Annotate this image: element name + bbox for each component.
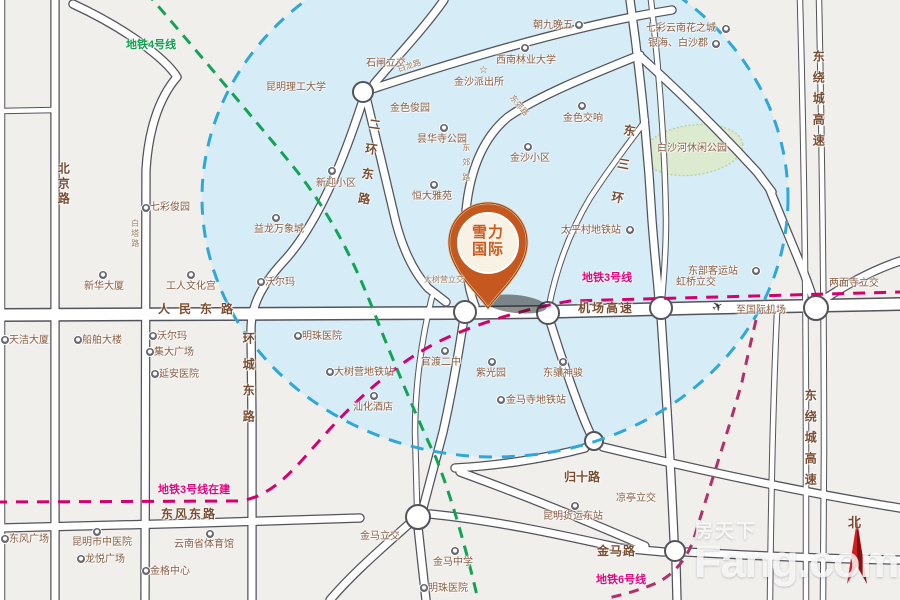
road-minor-topleft: [0, 110, 55, 111]
road-jinma-southwest: [330, 524, 409, 600]
road-guishi-lu: [603, 447, 900, 508]
compass-north-label: 北: [848, 512, 861, 531]
roundabout-shizha: [353, 82, 373, 102]
roundabout-liangmiansi: [804, 296, 828, 320]
map-canvas[interactable]: 朝九晚五七彩云南花之城银海、白沙郡昆明理工大学石闸立交西南林业大学金沙派出所金色…: [0, 0, 900, 600]
roundabout-dongsanhuan: [650, 297, 672, 319]
pin-inner-circle: [458, 213, 518, 273]
roundabout-dashuying: [454, 301, 476, 323]
roundabout-jinma-east: [665, 541, 685, 561]
road-baita-lu-casing: [73, 4, 177, 600]
road-jinma-south: [418, 527, 426, 600]
map-graphics: [0, 0, 900, 600]
roundabout-jinma: [406, 505, 430, 529]
